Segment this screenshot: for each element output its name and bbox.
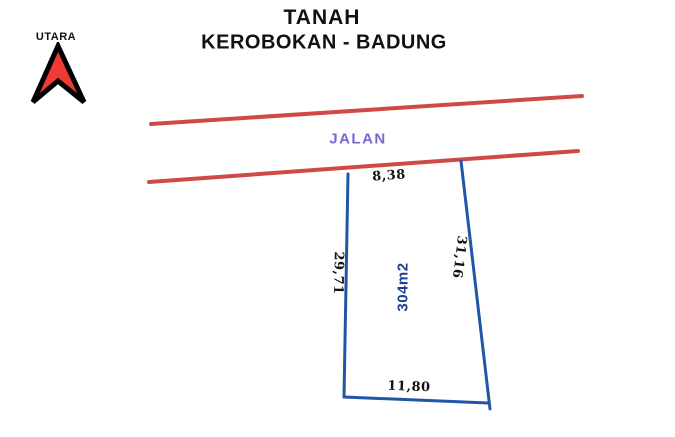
road-label: JALAN bbox=[329, 131, 387, 148]
road-line-lower bbox=[149, 151, 578, 182]
dimension-left: 29,71 bbox=[330, 251, 346, 294]
dimension-bottom: 11,80 bbox=[387, 379, 431, 395]
plot-boundary-bottom bbox=[344, 397, 488, 403]
diagram-lines bbox=[0, 0, 675, 437]
plot-boundary-right bbox=[461, 161, 490, 409]
plot-area-label: 304m2 bbox=[395, 262, 412, 311]
land-plot-diagram: TANAH KEROBOKAN - BADUNG UTARA JALAN 8,3… bbox=[0, 0, 675, 437]
road-line-upper bbox=[151, 96, 582, 124]
dimension-top: 8,38 bbox=[372, 167, 407, 184]
